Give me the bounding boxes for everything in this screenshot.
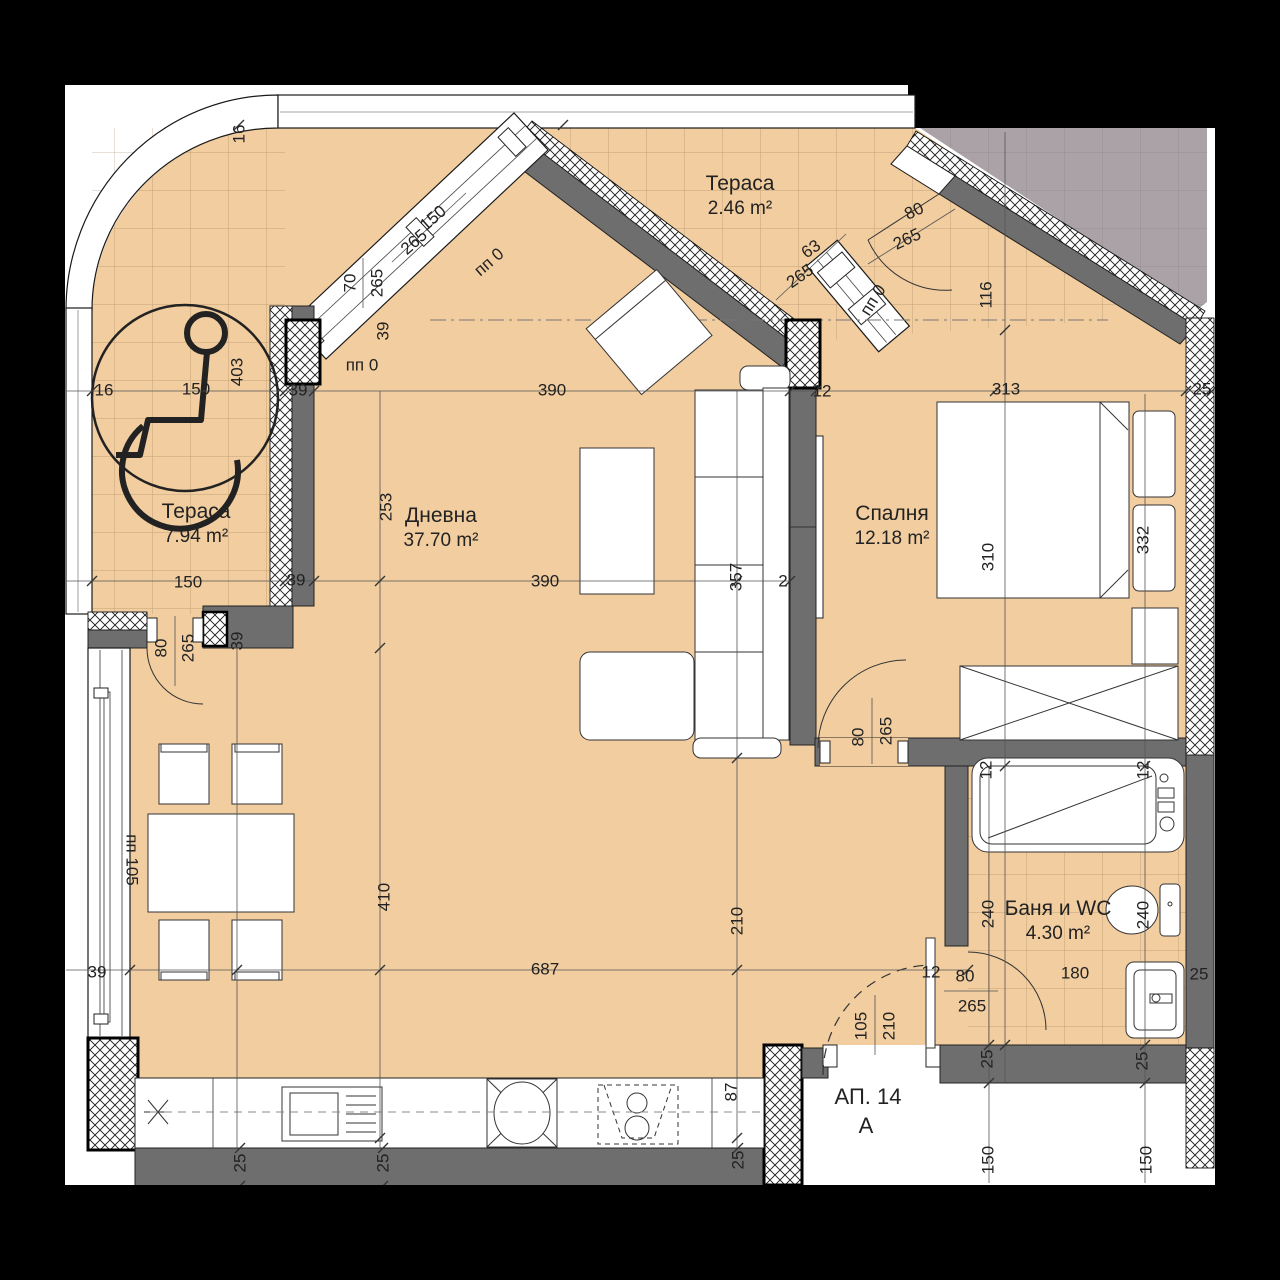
dimension-label: пп 0 xyxy=(346,357,379,374)
dimension-label: 39 xyxy=(375,322,392,341)
dimension-label: 105 xyxy=(853,1012,870,1040)
dimension-label: 25 xyxy=(1134,1052,1151,1071)
dimension-label: 240 xyxy=(1135,901,1152,929)
dimension-label: 410 xyxy=(376,883,393,911)
dimension-label: 16 xyxy=(231,125,248,144)
room-area: 12.18 m² xyxy=(855,527,930,552)
dimension-label: 16 xyxy=(95,382,114,399)
dimension-label: 265 xyxy=(369,269,386,297)
room-label: Спалня12.18 m² xyxy=(855,500,930,552)
dimension-label: 12 xyxy=(813,383,832,400)
dimension-label: 80 xyxy=(153,639,170,658)
dimension-label: 12 xyxy=(1135,761,1152,780)
sink-icon xyxy=(1126,962,1184,1038)
room-name: Баня и WC xyxy=(1005,895,1112,922)
dimension-label: 80 xyxy=(850,728,867,747)
room-name: Тераса xyxy=(162,498,231,525)
dimension-label: 403 xyxy=(229,358,246,386)
room-label: Тераса2.46 m² xyxy=(706,170,775,222)
dimension-label: 265 xyxy=(180,634,197,662)
dimension-label: 80 xyxy=(956,968,975,985)
dimension-label: 39 xyxy=(88,964,107,981)
dimension-label: 150 xyxy=(1138,1146,1155,1174)
dimension-label: 12 xyxy=(978,761,995,780)
kitchen-sink-icon xyxy=(487,1079,557,1147)
room-label: Баня и WC4.30 m² xyxy=(1005,895,1112,947)
dimension-label: 265 xyxy=(878,717,895,745)
floorplan-canvas: 161615039403150265пп 07026539пп 063265пп… xyxy=(0,0,1280,1280)
dimension-label: пп 105 xyxy=(124,834,141,886)
room-area: 37.70 m² xyxy=(404,529,479,554)
right-wall xyxy=(1186,318,1214,1168)
dimension-label: 210 xyxy=(729,907,746,935)
dimension-label: 150 xyxy=(980,1146,997,1174)
dimension-label: 313 xyxy=(992,381,1020,398)
dimension-label: 87 xyxy=(723,1083,740,1102)
room-name: Дневна xyxy=(404,502,479,529)
room-area: 4.30 m² xyxy=(1005,922,1112,947)
room-area: 7.94 m² xyxy=(162,525,231,550)
room-area: 2.46 m² xyxy=(706,197,775,222)
dimension-label: 180 xyxy=(1061,965,1089,982)
dimension-label: 265 xyxy=(958,998,986,1015)
dimension-label: 390 xyxy=(531,573,559,590)
kitchen-counter xyxy=(135,1078,764,1148)
dimension-label: 357 xyxy=(728,563,745,591)
room-name: Спалня xyxy=(855,500,930,527)
nightstand xyxy=(1132,608,1178,664)
room-label: Дневна37.70 m² xyxy=(404,502,479,554)
dimension-label: 390 xyxy=(538,382,566,399)
dimension-label: 25 xyxy=(375,1154,392,1173)
dimension-label: 2 xyxy=(778,573,787,590)
dimension-label: 253 xyxy=(378,493,395,521)
dimension-label: 25 xyxy=(979,1050,996,1069)
left-window-wall xyxy=(88,648,138,1150)
room-label: Тераса7.94 m² xyxy=(162,498,231,550)
coffee-table xyxy=(580,448,654,594)
dimension-label: 310 xyxy=(980,543,997,571)
dimension-label: 39 xyxy=(289,382,308,399)
dimension-label: 116 xyxy=(978,281,995,308)
dimension-label: 25 xyxy=(1193,381,1212,398)
dimension-label: 687 xyxy=(531,961,559,978)
apartment-number: АП. 14 xyxy=(835,1084,902,1110)
dimension-label: 210 xyxy=(881,1012,898,1040)
dimension-label: 70 xyxy=(342,274,359,293)
dimension-label: 25 xyxy=(1190,966,1209,983)
dimension-label: 332 xyxy=(1135,526,1152,554)
room-name: Тераса xyxy=(706,170,775,197)
dimension-label: 39 xyxy=(229,632,246,651)
building-section: А xyxy=(859,1113,874,1139)
terrace-living-wall xyxy=(270,306,320,606)
dimension-label: 12 xyxy=(922,964,941,981)
bathroom-wall xyxy=(945,766,968,946)
dimension-label: 25 xyxy=(730,1151,747,1170)
dimension-label: 39 xyxy=(287,572,306,589)
dimension-label: 25 xyxy=(232,1154,249,1173)
dimension-label: 240 xyxy=(980,900,997,928)
dimension-label: 150 xyxy=(174,574,202,591)
dimension-label: 150 xyxy=(182,381,210,398)
